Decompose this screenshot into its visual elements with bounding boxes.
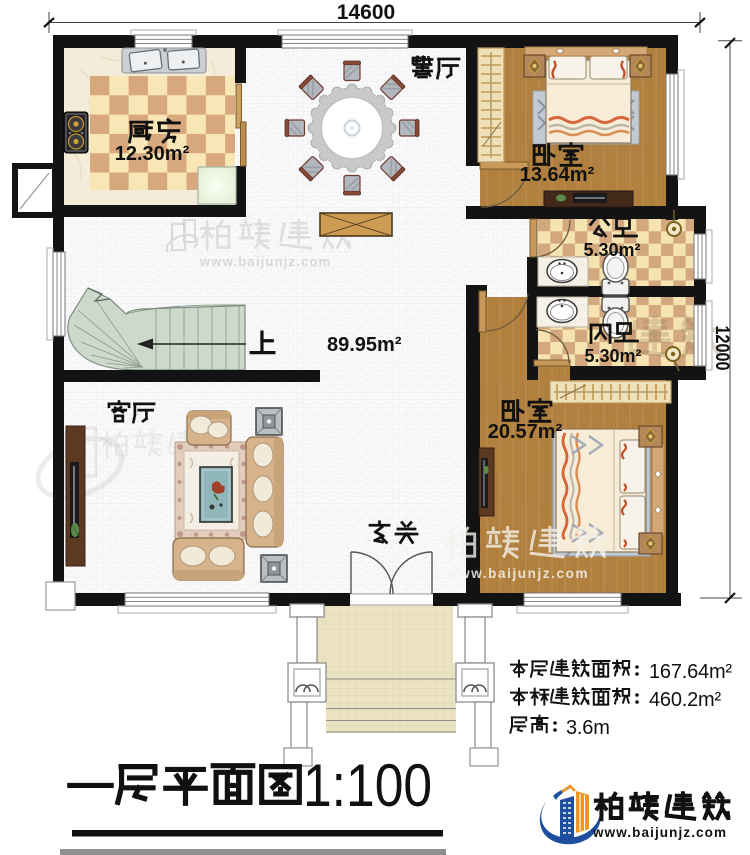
svg-text:20.57m²: 20.57m² <box>488 421 563 443</box>
svg-text:12.30m²: 12.30m² <box>115 143 190 165</box>
svg-text:13.64m²: 13.64m² <box>520 164 595 186</box>
svg-text:12000: 12000 <box>712 326 734 371</box>
svg-text:5.30m²: 5.30m² <box>583 240 640 260</box>
svg-text:1:100: 1:100 <box>303 751 432 819</box>
svg-text:5.30m²: 5.30m² <box>584 346 641 366</box>
svg-text:3.6m: 3.6m <box>566 717 610 739</box>
svg-text:www.baijunjz.com: www.baijunjz.com <box>446 566 589 581</box>
svg-text:167.64m²: 167.64m² <box>649 661 732 683</box>
svg-text:14600: 14600 <box>337 1 395 24</box>
svg-text:89.95m²: 89.95m² <box>327 334 402 356</box>
svg-text:www.baijunjz.com: www.baijunjz.com <box>199 254 331 269</box>
svg-text:www.baijunjz.com: www.baijunjz.com <box>592 825 727 840</box>
svg-text:460.2m²: 460.2m² <box>649 689 722 711</box>
